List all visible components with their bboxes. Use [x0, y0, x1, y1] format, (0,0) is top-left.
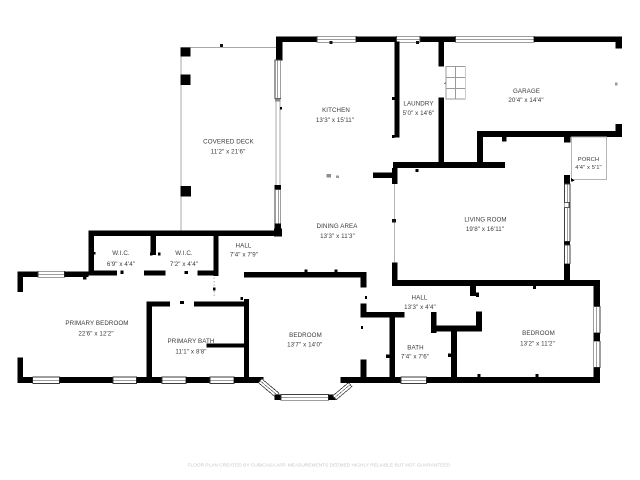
svg-text:13'2" x 11'2": 13'2" x 11'2"	[520, 341, 555, 348]
svg-text:13'3" x 15'11": 13'3" x 15'11"	[316, 117, 354, 124]
svg-text:11'1" x 8'8": 11'1" x 8'8"	[175, 349, 206, 356]
svg-text:FLOOR PLAN CREATED BY CUBICASA: FLOOR PLAN CREATED BY CUBICASA APP. MEAS…	[188, 463, 451, 469]
svg-text:BEDROOM: BEDROOM	[522, 330, 555, 337]
svg-text:7'4" x 7'6": 7'4" x 7'6"	[401, 354, 429, 361]
svg-text:BEDROOM: BEDROOM	[289, 332, 322, 339]
svg-text:COVERED DECK: COVERED DECK	[203, 139, 254, 146]
svg-text:11'2" x 21'6": 11'2" x 21'6"	[211, 149, 246, 156]
svg-text:PRIMARY BEDROOM: PRIMARY BEDROOM	[65, 320, 128, 327]
svg-text:13'3" x 11'3": 13'3" x 11'3"	[320, 233, 355, 240]
svg-text:7'4" x 7'9": 7'4" x 7'9"	[230, 251, 258, 258]
svg-text:HALL: HALL	[236, 243, 252, 250]
svg-text:4'4" x 5'1": 4'4" x 5'1"	[575, 165, 601, 171]
svg-text:W.I.C.: W.I.C.	[112, 250, 130, 257]
svg-text:19'8" x 16'11": 19'8" x 16'11"	[466, 226, 504, 233]
svg-text:W.I.C.: W.I.C.	[175, 250, 193, 257]
svg-text:20'4" x 14'4": 20'4" x 14'4"	[508, 97, 543, 104]
svg-text:22'6" x 12'2": 22'6" x 12'2"	[78, 331, 113, 338]
svg-text:13'3" x 4'4": 13'3" x 4'4"	[404, 304, 436, 311]
svg-text:PRIMARY BATH: PRIMARY BATH	[168, 338, 215, 345]
svg-text:DINING AREA: DINING AREA	[317, 223, 359, 230]
svg-text:GARAGE: GARAGE	[513, 88, 540, 95]
svg-text:7'2" x 4'4": 7'2" x 4'4"	[170, 261, 198, 268]
svg-text:5'0" x 14'6": 5'0" x 14'6"	[403, 110, 435, 117]
svg-text:6'9" x 4'4": 6'9" x 4'4"	[107, 261, 135, 268]
svg-text:LAUNDRY: LAUNDRY	[403, 101, 433, 108]
svg-text:LIVING ROOM: LIVING ROOM	[464, 216, 506, 223]
svg-text:PORCH: PORCH	[578, 157, 599, 163]
svg-text:13'7" x 14'0": 13'7" x 14'0"	[287, 341, 322, 348]
svg-text:KITCHEN: KITCHEN	[322, 107, 350, 114]
svg-text:BATH: BATH	[407, 344, 423, 351]
svg-text:HALL: HALL	[412, 295, 428, 302]
